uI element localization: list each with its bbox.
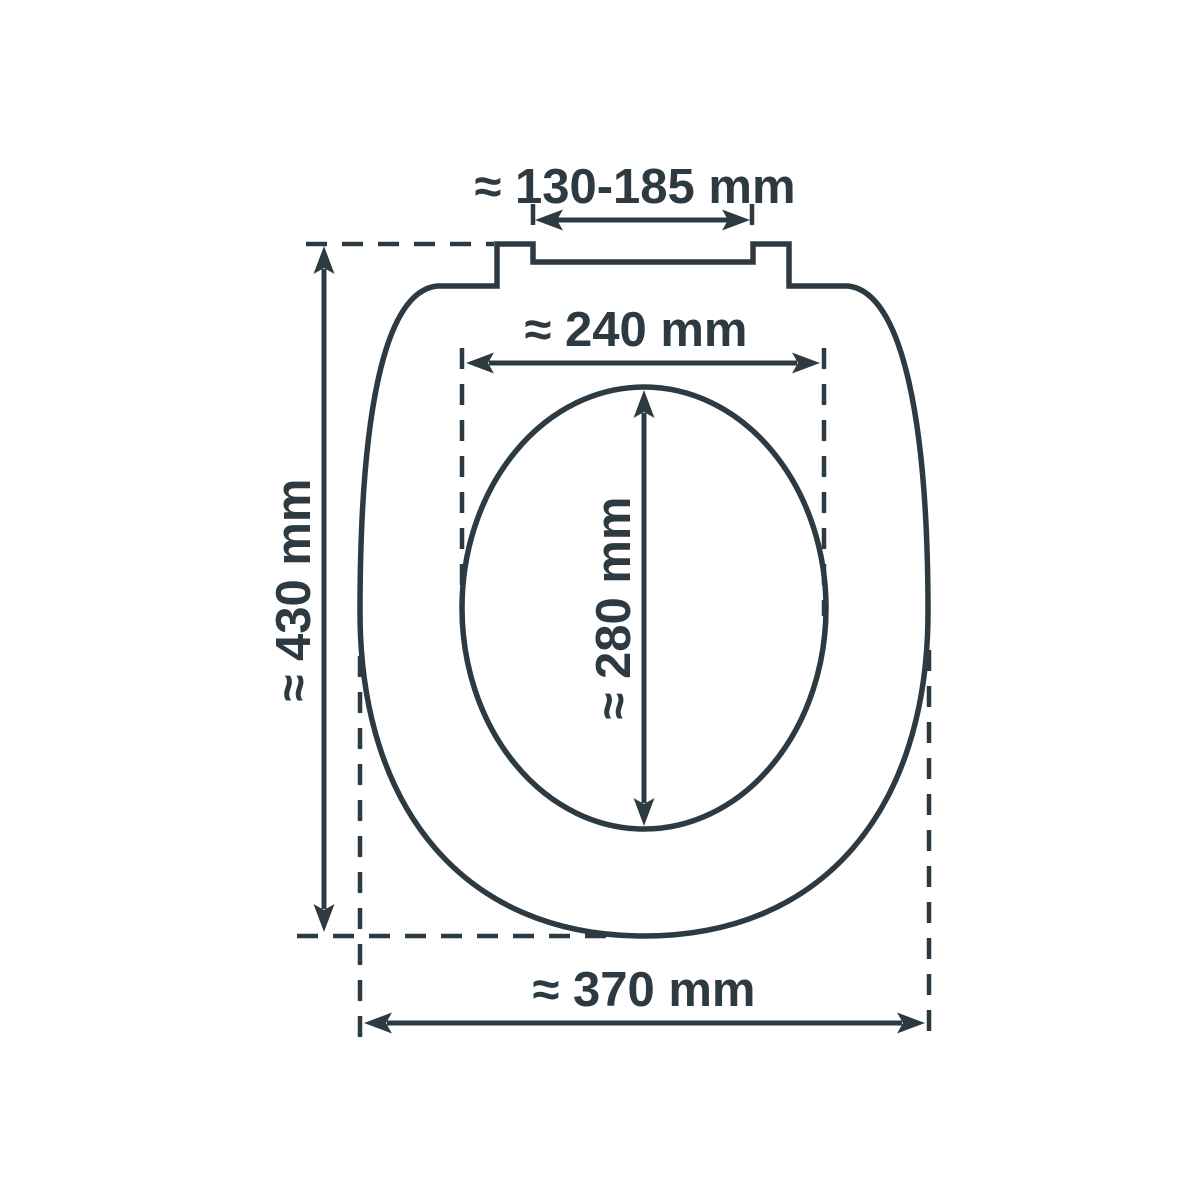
dimension-label-seat-length: ≈ 430 mm (267, 478, 321, 701)
dimension-hinge-hole-spacing: ≈ 130-185 mm (474, 160, 795, 240)
dimension-label-hinge-hole-spacing: ≈ 130-185 mm (474, 160, 795, 214)
dimension-label-inner-length: ≈ 280 mm (587, 496, 641, 719)
dimension-label-inner-width: ≈ 240 mm (524, 303, 747, 357)
dimension-label-seat-width: ≈ 370 mm (532, 963, 755, 1017)
diagram-canvas: ≈ 130-185 mm ≈ 240 mm ≈ 280 mm ≈ 430 mm (0, 0, 1200, 1200)
toilet-seat-dimension-diagram: ≈ 130-185 mm ≈ 240 mm ≈ 280 mm ≈ 430 mm (0, 0, 1200, 1200)
dimension-inner-length: ≈ 280 mm (587, 390, 655, 826)
